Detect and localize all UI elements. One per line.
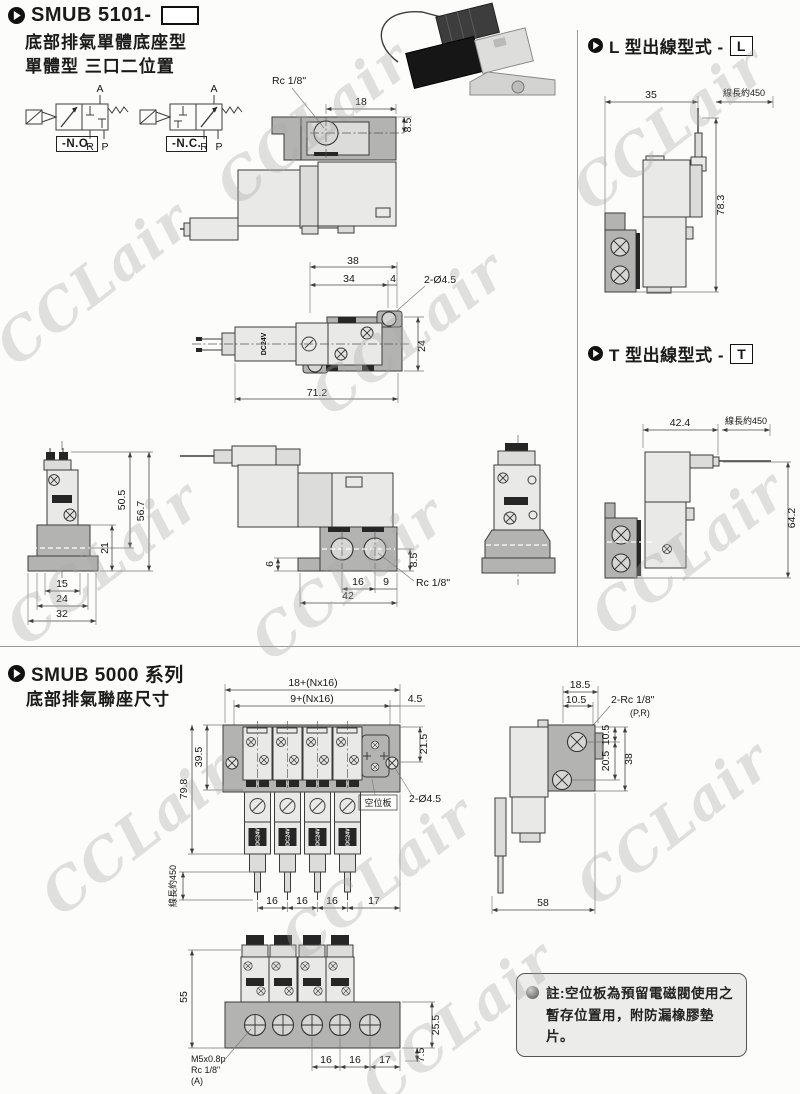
ltype-body xyxy=(605,108,706,293)
ttype-dimensions-top: 42.4 線長約450 xyxy=(643,415,770,455)
plan-view-dimensions-top: 38 34 4 2-Ø4.5 xyxy=(310,255,456,315)
drawing-ttype: 42.4 線長約450 64.2 xyxy=(583,393,800,633)
manifold-front-valves xyxy=(241,935,354,1002)
dim-16: 16 xyxy=(349,1054,361,1066)
plan-view-body: DC24V xyxy=(192,311,410,373)
dim-18: 18 xyxy=(355,96,367,108)
dim-17: 17 xyxy=(379,1054,391,1066)
dim-9: 9 xyxy=(383,576,389,588)
ttype-header-row: T 型出線型式 - T xyxy=(588,341,753,366)
ltype-code-box: L xyxy=(730,36,753,56)
note-bullet-icon xyxy=(526,986,539,999)
top-view-plate xyxy=(272,117,404,160)
drawing-manifold-front-view: 55 M5x0.8p Rc 1/8" (A) 16 16 17 25.5 7.5 xyxy=(163,923,463,1094)
blank-plate-label: 空位板 xyxy=(364,797,391,808)
dim-6: 6 xyxy=(264,561,276,567)
dim-total-length: 18+(Nx16) xyxy=(288,677,337,689)
dim-17: 17 xyxy=(368,895,380,907)
dim-55: 55 xyxy=(178,991,190,1003)
dim-25-5: 25.5 xyxy=(430,1015,442,1036)
dim-24: 24 xyxy=(56,593,68,605)
symbol-no-drawing xyxy=(26,95,128,139)
dim-thread-2: Rc 1/8" xyxy=(191,1065,220,1075)
note-line-2: 暫存位置用，附防漏橡膠墊片。 xyxy=(546,1008,714,1045)
catalog-page: CCLair CCLair CCLair CCLair CCLair CCLai… xyxy=(0,0,800,1094)
dim-10-5: 10.5 xyxy=(600,725,612,746)
dim-64-2: 64.2 xyxy=(786,508,798,529)
drawing-single-rear-view xyxy=(468,423,578,623)
station xyxy=(273,721,302,788)
dim-34: 34 xyxy=(343,273,355,285)
valve-column xyxy=(298,935,326,1002)
page-subtitle-2: 單體型 三口二位置 xyxy=(25,52,175,77)
manifold-front-block xyxy=(225,1002,400,1048)
dim-15: 15 xyxy=(56,578,68,590)
port-p-label: P xyxy=(101,141,108,153)
dim-35: 35 xyxy=(645,89,657,101)
dim-42-4: 42.4 xyxy=(670,417,691,429)
dim-rc18-label: Rc 1/8" xyxy=(272,75,306,87)
dim-rc18-label: Rc 1/8" xyxy=(416,577,450,589)
dim-thread-1: M5x0.8p xyxy=(191,1054,226,1064)
dim-holes: 2-Ø4.5 xyxy=(409,793,441,805)
dim-24: 24 xyxy=(416,340,428,352)
valve-column xyxy=(241,935,269,1002)
dim-32: 32 xyxy=(56,608,68,620)
valve-symbol-no: A R P xyxy=(14,82,134,156)
drawing-ltype: 35 線長約450 78.3 xyxy=(583,55,800,345)
dim-79-8: 79.8 xyxy=(178,779,190,800)
section-bullet-icon xyxy=(588,38,603,53)
coil-column: DC24V xyxy=(305,792,331,900)
dim-16: 16 xyxy=(352,576,364,588)
dim-10-5-top: 10.5 xyxy=(566,694,587,706)
section-bullet-icon xyxy=(588,346,603,361)
ltype-title: L 型出線型式 - xyxy=(609,33,724,58)
dim-56-7: 56.7 xyxy=(135,501,147,522)
dim-4: 4 xyxy=(390,273,396,285)
side-view-body xyxy=(180,446,397,571)
coil-voltage-label: DC24V xyxy=(316,828,322,846)
ltype-header-row: L 型出線型式 - L xyxy=(588,33,753,58)
valve-column xyxy=(269,935,297,1002)
ttype-body xyxy=(605,452,771,578)
coil-column: DC24V xyxy=(245,792,271,900)
drawing-single-front-view: 50.5 56.7 21 15 24 32 xyxy=(8,423,178,643)
dim-thread-3: (A) xyxy=(191,1076,203,1086)
dim-78-3: 78.3 xyxy=(715,195,727,216)
rear-view-body xyxy=(482,435,555,585)
dim-58: 58 xyxy=(537,897,549,909)
ttype-code-box: T xyxy=(730,344,753,364)
station xyxy=(243,721,272,788)
dim-wire-length: 線長約450 xyxy=(725,415,767,426)
dim-20-5: 20.5 xyxy=(600,751,612,772)
dim-8-5: 8.5 xyxy=(408,553,420,568)
drawing-manifold-side-view: 18.5 10.5 2-Rc 1/8" (P,R) xyxy=(458,658,800,938)
note-text: 註:空位板為預留電磁閥使用之 暫存位置用，附防漏橡膠墊片。 xyxy=(546,983,738,1048)
section-bullet-icon xyxy=(8,665,25,682)
note-box: 註:空位板為預留電磁閥使用之 暫存位置用，附防漏橡膠墊片。 xyxy=(516,973,747,1057)
dim-16: 16 xyxy=(326,895,338,907)
watermark-text: CCLair xyxy=(0,187,204,379)
coil-voltage-label: DC24V xyxy=(286,828,292,846)
dim-16: 16 xyxy=(320,1054,332,1066)
dim-8-5: 8.5 xyxy=(402,118,414,133)
station xyxy=(303,721,332,788)
model-option-box xyxy=(161,6,199,25)
drawing-single-plan-view: 38 34 4 2-Ø4.5 DC24V xyxy=(178,253,478,425)
dim-16: 16 xyxy=(266,895,278,907)
note-line-1: 註:空位板為預留電磁閥使用之 xyxy=(546,986,733,1001)
dim-4-5: 4.5 xyxy=(408,693,423,705)
drawing-single-top-view: 18 8.5 Rc 1/8" xyxy=(180,68,525,263)
manifold-title: SMUB 5000 系列 xyxy=(31,660,184,687)
manifold-side-body xyxy=(495,720,603,893)
header-title-row: SMUB 5101- xyxy=(8,4,199,27)
section-divider-horizontal xyxy=(0,646,800,647)
dim-ports-sub: (P,R) xyxy=(630,708,650,718)
dim-50-5: 50.5 xyxy=(116,490,128,511)
page-subtitle-1: 底部排氣單體底座型 xyxy=(25,28,187,53)
section-bullet-icon xyxy=(8,7,25,24)
dim-21: 21 xyxy=(99,542,111,554)
drawing-manifold-top-view: 18+(Nx16) 9+(Nx16) 4.5 xyxy=(163,658,463,938)
station xyxy=(333,721,362,788)
manifold-coils: DC24V DC24V xyxy=(245,792,361,900)
port-a-label: A xyxy=(96,83,103,95)
coil-voltage-label: DC24V xyxy=(256,828,262,846)
dim-42: 42 xyxy=(342,590,354,602)
valve-column xyxy=(326,935,354,1002)
side-view-under-top xyxy=(180,162,396,240)
dim-38: 38 xyxy=(623,753,635,765)
manifold-subtitle: 底部排氣聯座尺寸 xyxy=(26,685,170,710)
front-view-body xyxy=(28,441,98,585)
dim-18-5: 18.5 xyxy=(570,679,591,691)
drawing-single-side-view: 6 8.5 16 9 Rc 1/8" 42 xyxy=(178,423,478,643)
dim-holes: 2-Ø4.5 xyxy=(424,274,456,286)
dim-71-2: 71.2 xyxy=(307,387,328,399)
dim-wire-length: 線長約450 xyxy=(167,865,178,907)
dim-pitch-length: 9+(Nx16) xyxy=(290,693,333,705)
ttype-title: T 型出線型式 - xyxy=(609,341,724,366)
page-title: SMUB 5101- xyxy=(31,4,152,27)
dim-wire-length: 線長約450 xyxy=(723,87,765,98)
dim-39-5: 39.5 xyxy=(193,747,205,768)
coil-voltage-label: DC24V xyxy=(346,828,352,846)
dim-16: 16 xyxy=(296,895,308,907)
dim-7-5: 7.5 xyxy=(415,1048,427,1063)
dim-ports-label: 2-Rc 1/8" xyxy=(611,694,655,706)
coil-column: DC24V xyxy=(275,792,301,900)
coil-column: DC24V xyxy=(335,792,361,900)
manifold-header-row: SMUB 5000 系列 xyxy=(8,660,184,687)
port-r-label: R xyxy=(86,141,94,153)
dim-21-5: 21.5 xyxy=(418,734,430,755)
dim-38: 38 xyxy=(347,255,359,267)
